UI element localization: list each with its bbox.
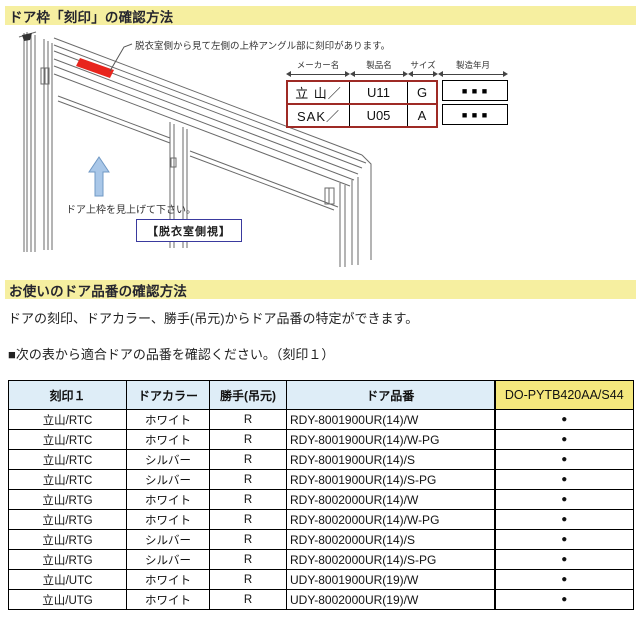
table-row: 立山/RTGホワイトRRDY-8002000UR(14)/W-PG● xyxy=(9,510,634,530)
stamp-col-header-product: 製品名 xyxy=(350,60,408,70)
table-cell: RDY-8001900UR(14)/W-PG xyxy=(287,430,495,450)
table-cell: UDY-8002000UR(19)/W xyxy=(287,590,495,610)
table-cell: RDY-8002000UR(14)/S-PG xyxy=(287,550,495,570)
door-table-body: 立山/RTCホワイトRRDY-8001900UR(14)/W●立山/RTCホワイ… xyxy=(9,410,634,610)
dimension-arrow-icon xyxy=(290,74,346,75)
up-arrow-icon xyxy=(89,157,109,196)
table-cell: 立山/RTC xyxy=(9,430,127,450)
table-cell: 立山/RTG xyxy=(9,490,127,510)
table-cell: R xyxy=(210,470,287,490)
dimension-arrow-icon xyxy=(442,74,504,75)
table-cell: ● xyxy=(495,510,634,530)
table-cell: 立山/RTG xyxy=(9,550,127,570)
table-cell: ● xyxy=(495,410,634,430)
stamp-size: G xyxy=(408,82,436,103)
table-cell: 立山/RTC xyxy=(9,410,127,430)
table-cell: RDY-8002000UR(14)/W-PG xyxy=(287,510,495,530)
door-table-header-cell: ドアカラー xyxy=(127,381,210,410)
section1-title: ドア枠「刻印」の確認方法 xyxy=(9,6,173,26)
table-cell: ● xyxy=(495,430,634,450)
table-row: 立山/RTCホワイトRRDY-8001900UR(14)/W-PG● xyxy=(9,430,634,450)
table-cell: シルバー xyxy=(127,530,210,550)
table-cell: ● xyxy=(495,550,634,570)
table-cell: シルバー xyxy=(127,470,210,490)
table-cell: RDY-8002000UR(14)/W xyxy=(287,490,495,510)
table-cell: ● xyxy=(495,470,634,490)
table-cell: 立山/UTC xyxy=(9,570,127,590)
table-cell: シルバー xyxy=(127,550,210,570)
door-table-header-cell: 刻印１ xyxy=(9,381,127,410)
door-frame-diagram: 脱衣室側から見て左側の上枠アングル部に刻印があります。 ドア上枠を見上げて下さい… xyxy=(0,30,520,280)
stamp-example-table: メーカー名 製品名 サイズ 製造年月 立 山／ U11 G xyxy=(286,60,508,128)
stamp-date: ■ ■ ■ xyxy=(442,104,508,125)
section2-title: お使いのドア品番の確認方法 xyxy=(9,280,187,300)
stamp-col-header-maker: メーカー名 xyxy=(286,60,350,70)
table-cell: R xyxy=(210,430,287,450)
table-cell: ホワイト xyxy=(127,510,210,530)
table-cell: R xyxy=(210,510,287,530)
table-cell: 立山/RTG xyxy=(9,530,127,550)
table-row: 立山/RTGシルバーRRDY-8002000UR(14)/S-PG● xyxy=(9,550,634,570)
instruction-text: ■次の表から適合ドアの品番を確認ください。（刻印１） xyxy=(8,344,334,363)
stamp-col-header-date: 製造年月 xyxy=(438,60,508,70)
table-cell: 立山/RTC xyxy=(9,470,127,490)
stamp-maker: SAK／ xyxy=(288,105,350,126)
table-cell: ホワイト xyxy=(127,590,210,610)
table-row: 立山/RTCシルバーRRDY-8001900UR(14)/S-PG● xyxy=(9,470,634,490)
table-cell: RDY-8001900UR(14)/S-PG xyxy=(287,470,495,490)
table-cell: ホワイト xyxy=(127,410,210,430)
section2-header-bar: お使いのドア品番の確認方法 xyxy=(5,280,636,299)
document-page: ドア枠「刻印」の確認方法 xyxy=(0,0,640,629)
dimension-arrows xyxy=(286,70,508,78)
intro-text: ドアの刻印、ドアカラー、勝手(吊元)からドア品番の特定ができます。 xyxy=(8,308,418,327)
table-cell: RDY-8002000UR(14)/S xyxy=(287,530,495,550)
table-cell: R xyxy=(210,530,287,550)
stamp-date: ■ ■ ■ xyxy=(442,80,508,101)
table-cell: ● xyxy=(495,530,634,550)
table-cell: R xyxy=(210,410,287,430)
stamp-maker: 立 山／ xyxy=(288,82,350,103)
table-cell: R xyxy=(210,450,287,470)
table-cell: R xyxy=(210,550,287,570)
table-row: 立山/RTCシルバーRRDY-8001900UR(14)/S● xyxy=(9,450,634,470)
table-cell: UDY-8001900UR(19)/W xyxy=(287,570,495,590)
door-table-header-cell: DO-PYTB420AA/S44 xyxy=(495,381,634,410)
table-cell: ホワイト xyxy=(127,490,210,510)
table-cell: 立山/UTG xyxy=(9,590,127,610)
table-cell: 立山/RTG xyxy=(9,510,127,530)
table-cell: ● xyxy=(495,590,634,610)
table-cell: R xyxy=(210,570,287,590)
dimension-arrow-icon xyxy=(354,74,404,75)
dimension-arrow-icon xyxy=(412,74,434,75)
table-cell: シルバー xyxy=(127,450,210,470)
table-row: 立山/UTGホワイトRUDY-8002000UR(19)/W● xyxy=(9,590,634,610)
table-cell: ● xyxy=(495,490,634,510)
look-up-note: ドア上枠を見上げて下さい。 xyxy=(66,201,196,216)
stamp-row: 立 山／ U11 G xyxy=(288,82,436,103)
table-cell: ● xyxy=(495,450,634,470)
stamp-table-red-box: 立 山／ U11 G SAK／ U05 A xyxy=(286,80,438,128)
table-cell: R xyxy=(210,490,287,510)
stamp-size: A xyxy=(408,105,436,126)
section1-header-bar: ドア枠「刻印」の確認方法 xyxy=(5,6,636,25)
table-row: 立山/RTGシルバーRRDY-8002000UR(14)/S● xyxy=(9,530,634,550)
stamp-annotation: 脱衣室側から見て左側の上枠アングル部に刻印があります。 xyxy=(135,38,390,52)
stamp-col-header-size: サイズ xyxy=(408,60,438,70)
left-jamb xyxy=(19,32,52,252)
stamp-table-headers: メーカー名 製品名 サイズ 製造年月 xyxy=(286,60,508,70)
table-cell: ● xyxy=(495,570,634,590)
table-cell: R xyxy=(210,590,287,610)
door-table-header-cell: ドア品番 xyxy=(287,381,495,410)
table-cell: ホワイト xyxy=(127,430,210,450)
table-cell: ホワイト xyxy=(127,570,210,590)
door-part-number-table: 刻印１ドアカラー勝手(吊元)ドア品番DO-PYTB420AA/S44 立山/RT… xyxy=(8,380,634,610)
door-table-header-cell: 勝手(吊元) xyxy=(210,381,287,410)
door-table-header-row: 刻印１ドアカラー勝手(吊元)ドア品番DO-PYTB420AA/S44 xyxy=(9,381,634,410)
table-cell: RDY-8001900UR(14)/W xyxy=(287,410,495,430)
table-cell: RDY-8001900UR(14)/S xyxy=(287,450,495,470)
stamp-product: U05 xyxy=(350,105,408,126)
stamp-product: U11 xyxy=(350,82,408,103)
stamp-row: SAK／ U05 A xyxy=(288,103,436,126)
table-row: 立山/RTGホワイトRRDY-8002000UR(14)/W● xyxy=(9,490,634,510)
table-cell: 立山/RTC xyxy=(9,450,127,470)
table-row: 立山/RTCホワイトRRDY-8001900UR(14)/W● xyxy=(9,410,634,430)
table-row: 立山/UTCホワイトRUDY-8001900UR(19)/W● xyxy=(9,570,634,590)
view-label-box: 【脱衣室側視】 xyxy=(136,219,242,242)
